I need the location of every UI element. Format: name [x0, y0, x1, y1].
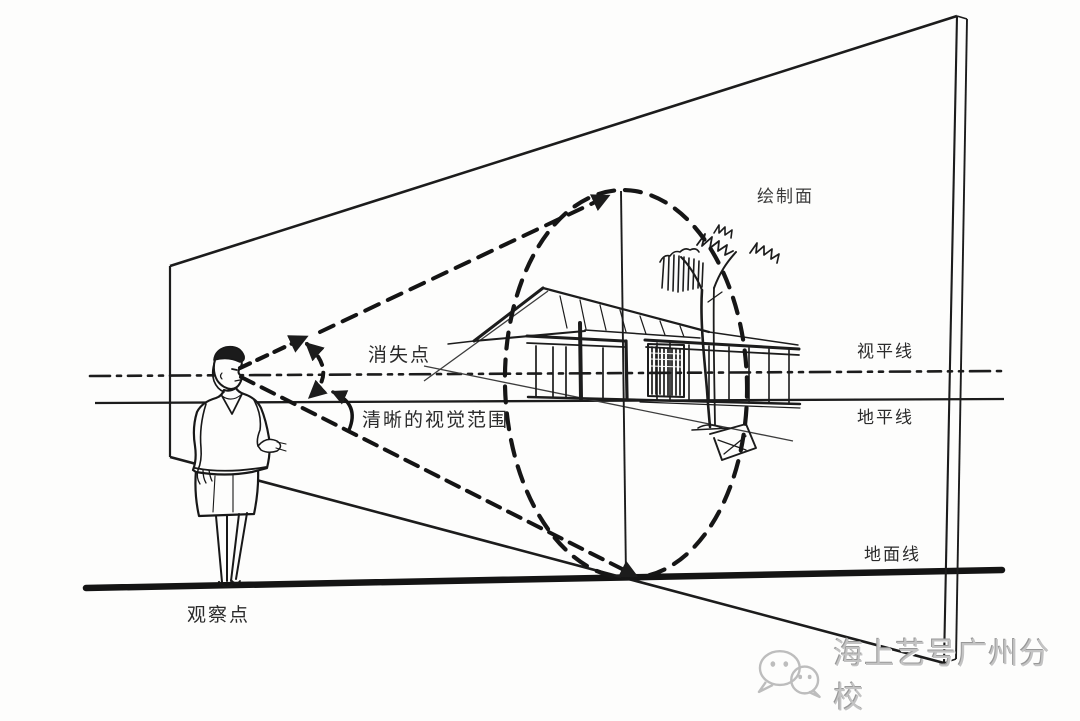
label-ground-line: 地面线 [864, 540, 921, 565]
label-vanishing-point: 消失点 [368, 340, 431, 367]
watermark: 海上艺号广州分校 [752, 645, 1080, 701]
perspective-tutorial-diagram: 绘制面 消失点 清晰的视觉范围 视平线 地平线 地面线 观察点 海上艺号广州分校 [0, 0, 1080, 721]
diagram-sketch-canvas [0, 0, 1080, 721]
wechat-icon [752, 645, 828, 701]
label-drawing-plane: 绘制面 [757, 182, 814, 207]
label-clear-visual-range: 清晰的视觉范围 [362, 405, 509, 432]
label-ground-horizon-line: 地平线 [857, 403, 914, 428]
vision-angle-arc-arrow [307, 344, 323, 397]
cone-of-vision-rays [240, 196, 636, 576]
watermark-text: 海上艺号广州分校 [834, 629, 1080, 717]
label-eye-level-line: 视平线 [857, 337, 914, 362]
label-observation-point: 观察点 [187, 600, 250, 627]
observer-figure [193, 347, 286, 587]
